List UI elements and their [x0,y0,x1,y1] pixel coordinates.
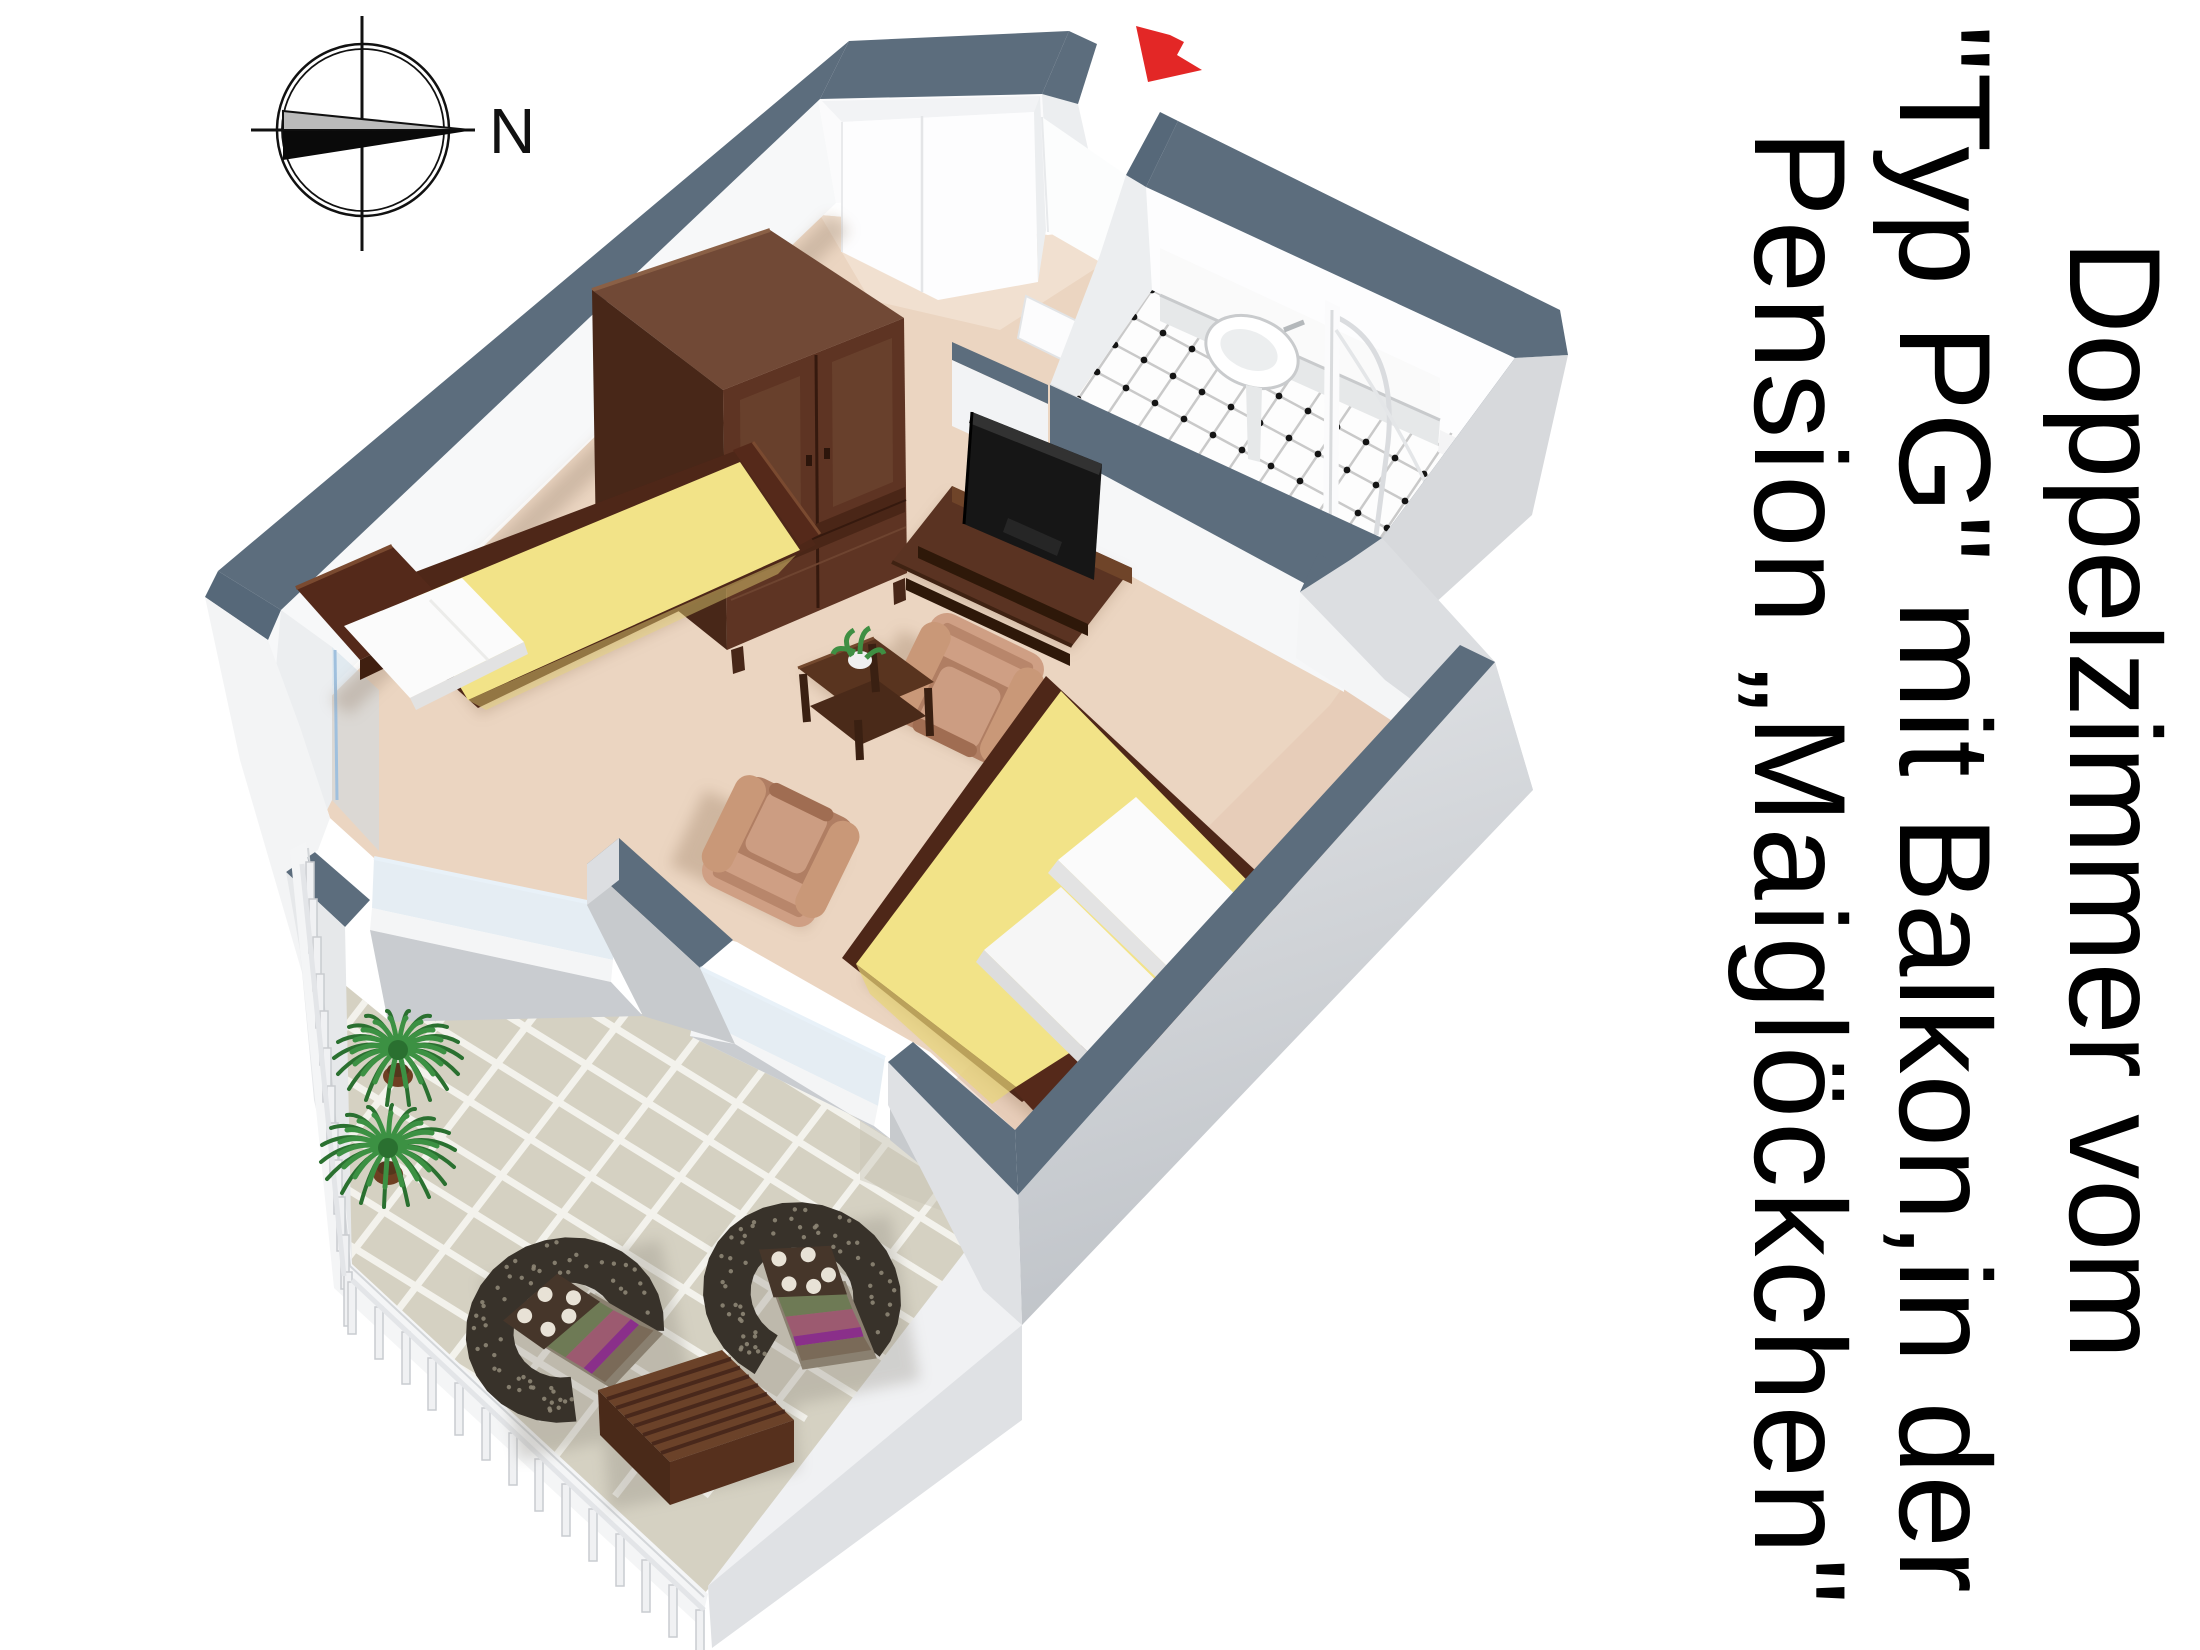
svg-text:"Typ PG" mit Balkon,in der: "Typ PG" mit Balkon,in der [1872,25,2018,1594]
svg-text:Pension „Maiglöckchen": Pension „Maiglöckchen" [1727,130,1873,1608]
svg-text:N: N [489,95,535,167]
svg-text:Doppelzimmer vom: Doppelzimmer vom [2042,240,2188,1360]
